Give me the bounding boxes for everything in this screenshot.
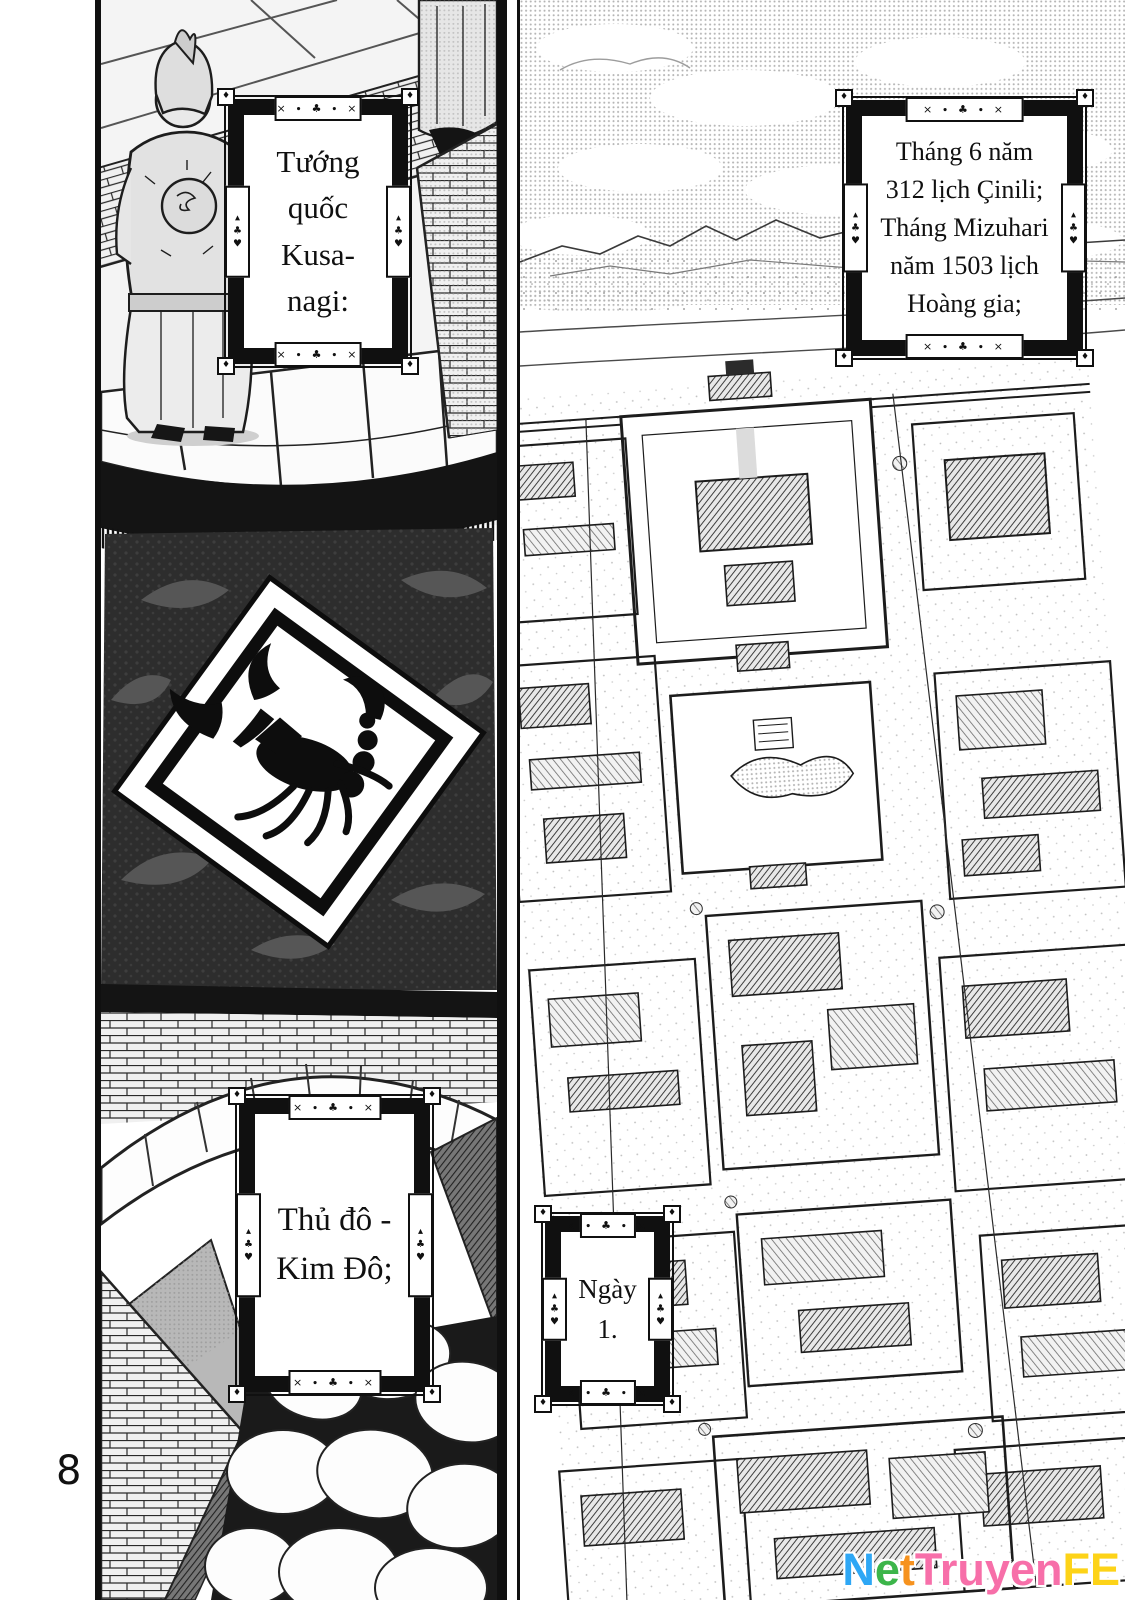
watermark-letter: T xyxy=(915,1544,940,1595)
frame-corner-ornament: ♦ xyxy=(401,88,419,106)
frame-plaque-right: ▴ ♣ ♥ xyxy=(386,185,411,278)
scorpion-banner xyxy=(101,528,497,998)
frame-plaque-top: × ∙ ♣ ∙ × xyxy=(275,96,362,121)
frame-corner-ornament: ♦ xyxy=(217,357,235,375)
frame-corner-ornament: ♦ xyxy=(217,88,235,106)
frame-corner-ornament: ♦ xyxy=(423,1087,441,1105)
watermark-letter: t xyxy=(900,1544,915,1595)
watermark-letter: y xyxy=(985,1544,1010,1595)
frame-corner-ornament: ♦ xyxy=(835,349,853,367)
watermark-letter: n xyxy=(1035,1544,1063,1595)
frame-plaque-left: ▴ ♣ ♥ xyxy=(225,185,250,278)
watermark: NetTruyenFE xyxy=(842,1544,1120,1596)
watermark-letter: e xyxy=(875,1544,900,1595)
caption-box-era-date: Tháng 6 năm 312 lịch Çinili; Tháng Mizuh… xyxy=(846,100,1083,356)
watermark-letter: e xyxy=(1010,1544,1035,1595)
frame-corner-ornament: ♦ xyxy=(423,1385,441,1403)
frame-corner-ornament: ♦ xyxy=(663,1205,681,1223)
frame-plaque-top: × ∙ ♣ ∙ × xyxy=(579,1213,635,1238)
frame-corner-ornament: ♦ xyxy=(1076,89,1094,107)
watermark-letter: E xyxy=(1090,1544,1120,1595)
caption-capital-text: Thủ đô - Kim Đô; xyxy=(276,1196,392,1295)
frame-corner-ornament: ♦ xyxy=(835,89,853,107)
frame-plaque-left: ▴ ♣ ♥ xyxy=(843,183,868,272)
caption-date-text: Tháng 6 năm 312 lịch Çinili; Tháng Mizuh… xyxy=(880,133,1048,323)
manga-page: Tướng quốc Kusa- nagi: × ∙ ♣ ∙ × × ∙ ♣ ∙… xyxy=(0,0,1125,1600)
frame-corner-ornament: ♦ xyxy=(534,1395,552,1413)
caption-general-text: Tướng quốc Kusa- nagi: xyxy=(276,139,359,325)
frame-plaque-left: ▴ ♣ ♥ xyxy=(236,1193,261,1297)
frame-plaque-left: ▴ ♣ ♥ xyxy=(542,1278,567,1341)
frame-plaque-right: ▴ ♣ ♥ xyxy=(648,1278,673,1341)
watermark-letter: u xyxy=(957,1544,985,1595)
caption-day-text: Ngày 1. xyxy=(578,1269,636,1350)
frame-plaque-bottom: × ∙ ♣ ∙ × xyxy=(905,334,1024,359)
frame-corner-ornament: ♦ xyxy=(401,357,419,375)
frame-plaque-top: × ∙ ♣ ∙ × xyxy=(288,1095,381,1120)
frame-corner-ornament: ♦ xyxy=(663,1395,681,1413)
caption-box-day: Ngày 1. × ∙ ♣ ∙ × × ∙ ♣ ∙ × ▴ ♣ ♥ ▴ ♣ ♥ … xyxy=(545,1216,670,1402)
watermark-letter: r xyxy=(940,1544,958,1595)
frame-corner-ornament: ♦ xyxy=(228,1385,246,1403)
watermark-letter: N xyxy=(842,1544,875,1595)
frame-plaque-bottom: × ∙ ♣ ∙ × xyxy=(275,342,362,367)
watermark-letter: F xyxy=(1062,1544,1090,1595)
frame-plaque-right: ▴ ♣ ♥ xyxy=(1061,183,1086,272)
caption-box-capital: Thủ đô - Kim Đô; × ∙ ♣ ∙ × × ∙ ♣ ∙ × ▴ ♣… xyxy=(239,1098,430,1392)
frame-plaque-bottom: × ∙ ♣ ∙ × xyxy=(288,1370,381,1395)
page-number: 8 xyxy=(56,1448,81,1494)
frame-plaque-bottom: × ∙ ♣ ∙ × xyxy=(579,1380,635,1405)
capital-city xyxy=(520,336,1125,1600)
frame-corner-ornament: ♦ xyxy=(534,1205,552,1223)
frame-corner-ornament: ♦ xyxy=(1076,349,1094,367)
frame-plaque-right: ▴ ♣ ♥ xyxy=(408,1193,433,1297)
caption-box-general: Tướng quốc Kusa- nagi: × ∙ ♣ ∙ × × ∙ ♣ ∙… xyxy=(228,99,408,364)
frame-plaque-top: × ∙ ♣ ∙ × xyxy=(905,97,1024,122)
frame-corner-ornament: ♦ xyxy=(228,1087,246,1105)
